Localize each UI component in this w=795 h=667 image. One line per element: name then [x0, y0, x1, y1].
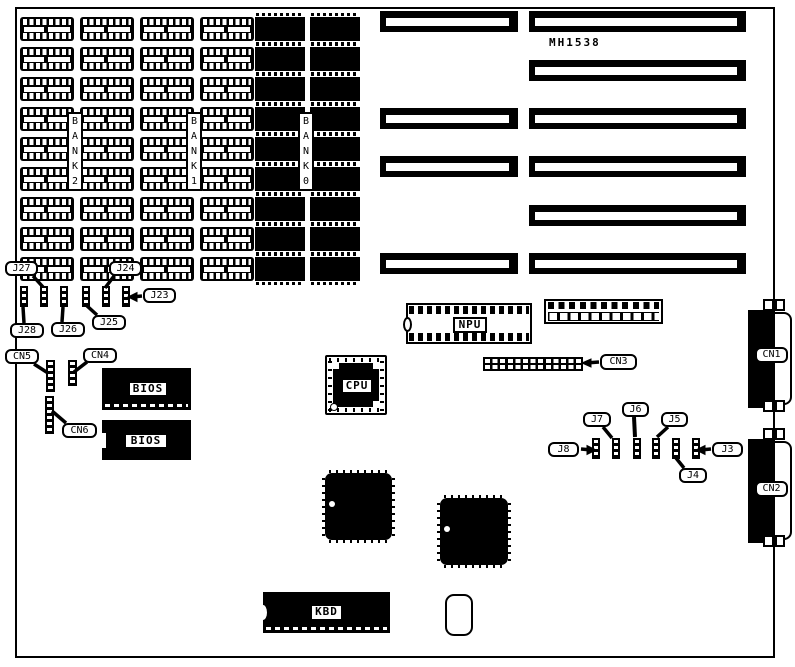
- isa-slot-short-segment: [380, 156, 518, 177]
- memory-chip: [255, 197, 305, 221]
- cn3-header: [483, 357, 583, 371]
- jumper-j28: [20, 286, 28, 307]
- memory-socket: [200, 77, 254, 101]
- cpu-pin1-dot: [330, 403, 338, 411]
- callout-j24: J24: [109, 261, 142, 276]
- callout-j8: J8: [548, 442, 579, 457]
- callout-cn2: CN2: [755, 481, 788, 497]
- motherboard-diagram: MH1538 BANK2 BANK1 BANK0 NPU CPU BIOS: [0, 0, 795, 667]
- connector-cn5: [46, 360, 55, 392]
- callout-j6: J6: [622, 402, 649, 417]
- isa-slot-long-segment: [529, 156, 746, 177]
- memory-chip: [310, 197, 360, 221]
- keyboard-controller-chip: KBD: [263, 592, 390, 633]
- bios-bottom-label: BIOS: [124, 433, 168, 449]
- memory-socket: [200, 257, 254, 281]
- bank2-label: BANK2: [67, 112, 83, 191]
- cn3-pin-row-top: [485, 359, 581, 363]
- callout-j3: J3: [712, 442, 743, 457]
- npu-notch: [403, 317, 412, 332]
- npu-socket: NPU: [406, 303, 532, 344]
- memory-socket: [200, 197, 254, 221]
- qfp-ticks: [508, 502, 511, 561]
- power-connector: [544, 299, 663, 324]
- jumper-j26: [60, 286, 68, 307]
- memory-chip: [255, 17, 305, 41]
- kbd-label: KBD: [310, 604, 343, 621]
- memory-socket: [20, 227, 74, 251]
- npu-label: NPU: [453, 317, 487, 333]
- bios-chip-bottom: BIOS: [102, 420, 191, 460]
- jumper-j25: [82, 286, 90, 307]
- memory-socket: [20, 197, 74, 221]
- memory-chip: [310, 47, 360, 71]
- cn1-mount-tab-top: [763, 299, 785, 311]
- memory-socket: [200, 47, 254, 71]
- memory-socket: [140, 227, 194, 251]
- memory-chip: [255, 77, 305, 101]
- isa-slot-short-segment: [380, 108, 518, 129]
- memory-socket: [140, 197, 194, 221]
- connector-cn4: [68, 360, 77, 386]
- isa-slot-long-segment: [529, 60, 746, 81]
- jumper-j7: [612, 438, 620, 459]
- callout-j7: J7: [583, 412, 611, 427]
- qfp-chip-right: [440, 498, 508, 565]
- qfp-ticks: [329, 470, 388, 473]
- callout-cn1: CN1: [755, 347, 788, 363]
- qfp-ticks: [392, 477, 395, 536]
- kbd-notch: [259, 605, 267, 620]
- kbd-pin-dashes: [266, 627, 387, 630]
- jumper-j23: [122, 286, 130, 307]
- callout-j27: J27: [5, 261, 38, 276]
- callout-cn3: CN3: [600, 354, 637, 370]
- memory-socket: [20, 47, 74, 71]
- bios-top-label: BIOS: [128, 381, 168, 397]
- memory-chip: [310, 167, 360, 191]
- qfp-ticks: [444, 495, 504, 498]
- callout-j25: J25: [92, 315, 126, 330]
- memory-socket: [20, 17, 74, 41]
- cn2-mount-tab-bottom: [763, 535, 785, 547]
- memory-socket: [80, 47, 134, 71]
- memory-socket: [200, 167, 254, 191]
- memory-chip: [255, 257, 305, 281]
- qfp-ticks: [329, 540, 388, 543]
- memory-socket: [20, 77, 74, 101]
- isa-slot-long-segment: [529, 205, 746, 226]
- memory-socket: [20, 137, 74, 161]
- cpu-corner-br: [373, 401, 380, 408]
- memory-socket: [80, 167, 134, 191]
- callout-j23: J23: [143, 288, 176, 303]
- jumper-j5: [652, 438, 660, 459]
- isa-slot-long-segment: [529, 253, 746, 274]
- memory-socket: [140, 17, 194, 41]
- memory-socket: [140, 77, 194, 101]
- cpu-label: CPU: [341, 378, 373, 394]
- isa-slot-short-segment: [380, 11, 518, 32]
- power-connector-holes: [548, 312, 659, 321]
- memory-socket: [80, 197, 134, 221]
- bank0-label: BANK0: [298, 112, 314, 191]
- qfp-ticks: [437, 502, 440, 561]
- cpu-corner-tl: [332, 362, 339, 369]
- callout-j4: J4: [679, 468, 707, 483]
- memory-socket: [140, 47, 194, 71]
- memory-chip: [255, 227, 305, 251]
- jumper-j3: [692, 438, 700, 459]
- npu-pin-row-bottom: [409, 333, 529, 341]
- memory-socket: [200, 227, 254, 251]
- memory-socket: [200, 17, 254, 41]
- qfp-pin1-dot: [444, 526, 450, 532]
- isa-slot-short-segment: [380, 253, 518, 274]
- memory-chip: [310, 227, 360, 251]
- isa-slot-long-segment: [529, 11, 746, 32]
- memory-socket: [80, 17, 134, 41]
- qfp-ticks: [444, 565, 504, 568]
- memory-socket: [140, 257, 194, 281]
- jumper-j6: [633, 438, 641, 459]
- memory-chip: [255, 47, 305, 71]
- connector-cn6: [45, 396, 54, 434]
- qfp-chip-left: [325, 473, 392, 540]
- memory-socket: [20, 107, 74, 131]
- power-connector-pins: [548, 302, 659, 309]
- cn1-mount-tab-bottom: [763, 400, 785, 412]
- memory-chip: [310, 257, 360, 281]
- npu-pin-row-top: [409, 306, 529, 314]
- memory-socket: [80, 137, 134, 161]
- memory-socket: [80, 107, 134, 131]
- jumper-j8: [592, 438, 600, 459]
- cpu-socket: CPU: [325, 355, 387, 415]
- callout-j5: J5: [661, 412, 688, 427]
- crystal-outline: [445, 594, 473, 636]
- memory-socket: [200, 137, 254, 161]
- memory-socket: [80, 77, 134, 101]
- cn3-pin-row-bottom: [485, 365, 581, 369]
- qfp-ticks: [322, 477, 325, 536]
- memory-chip: [310, 77, 360, 101]
- board-outline: [15, 7, 775, 658]
- cpu-corner-tr: [373, 362, 380, 369]
- callout-cn6: CN6: [62, 423, 97, 438]
- jumper-j24: [102, 286, 110, 307]
- board-model-label: MH1538: [549, 36, 601, 49]
- jumper-j4: [672, 438, 680, 459]
- bios-bottom-notch: [102, 433, 106, 448]
- memory-socket: [80, 227, 134, 251]
- bios-top-pin-dashes: [105, 404, 188, 407]
- isa-slot-long-segment: [529, 108, 746, 129]
- callout-cn5: CN5: [5, 349, 39, 364]
- memory-chip: [310, 17, 360, 41]
- bank1-label: BANK1: [186, 112, 202, 191]
- memory-socket: [20, 167, 74, 191]
- memory-socket: [200, 107, 254, 131]
- callout-j28: J28: [10, 323, 44, 338]
- bios-chip-top: BIOS: [102, 368, 191, 410]
- qfp-pin1-dot: [329, 501, 335, 507]
- memory-chip: [310, 107, 360, 131]
- callout-j26: J26: [51, 322, 85, 337]
- callout-cn4: CN4: [83, 348, 117, 363]
- memory-chip: [310, 137, 360, 161]
- cn2-mount-tab-top: [763, 428, 785, 440]
- cpu-ticks-right: [380, 359, 384, 411]
- jumper-j27: [40, 286, 48, 307]
